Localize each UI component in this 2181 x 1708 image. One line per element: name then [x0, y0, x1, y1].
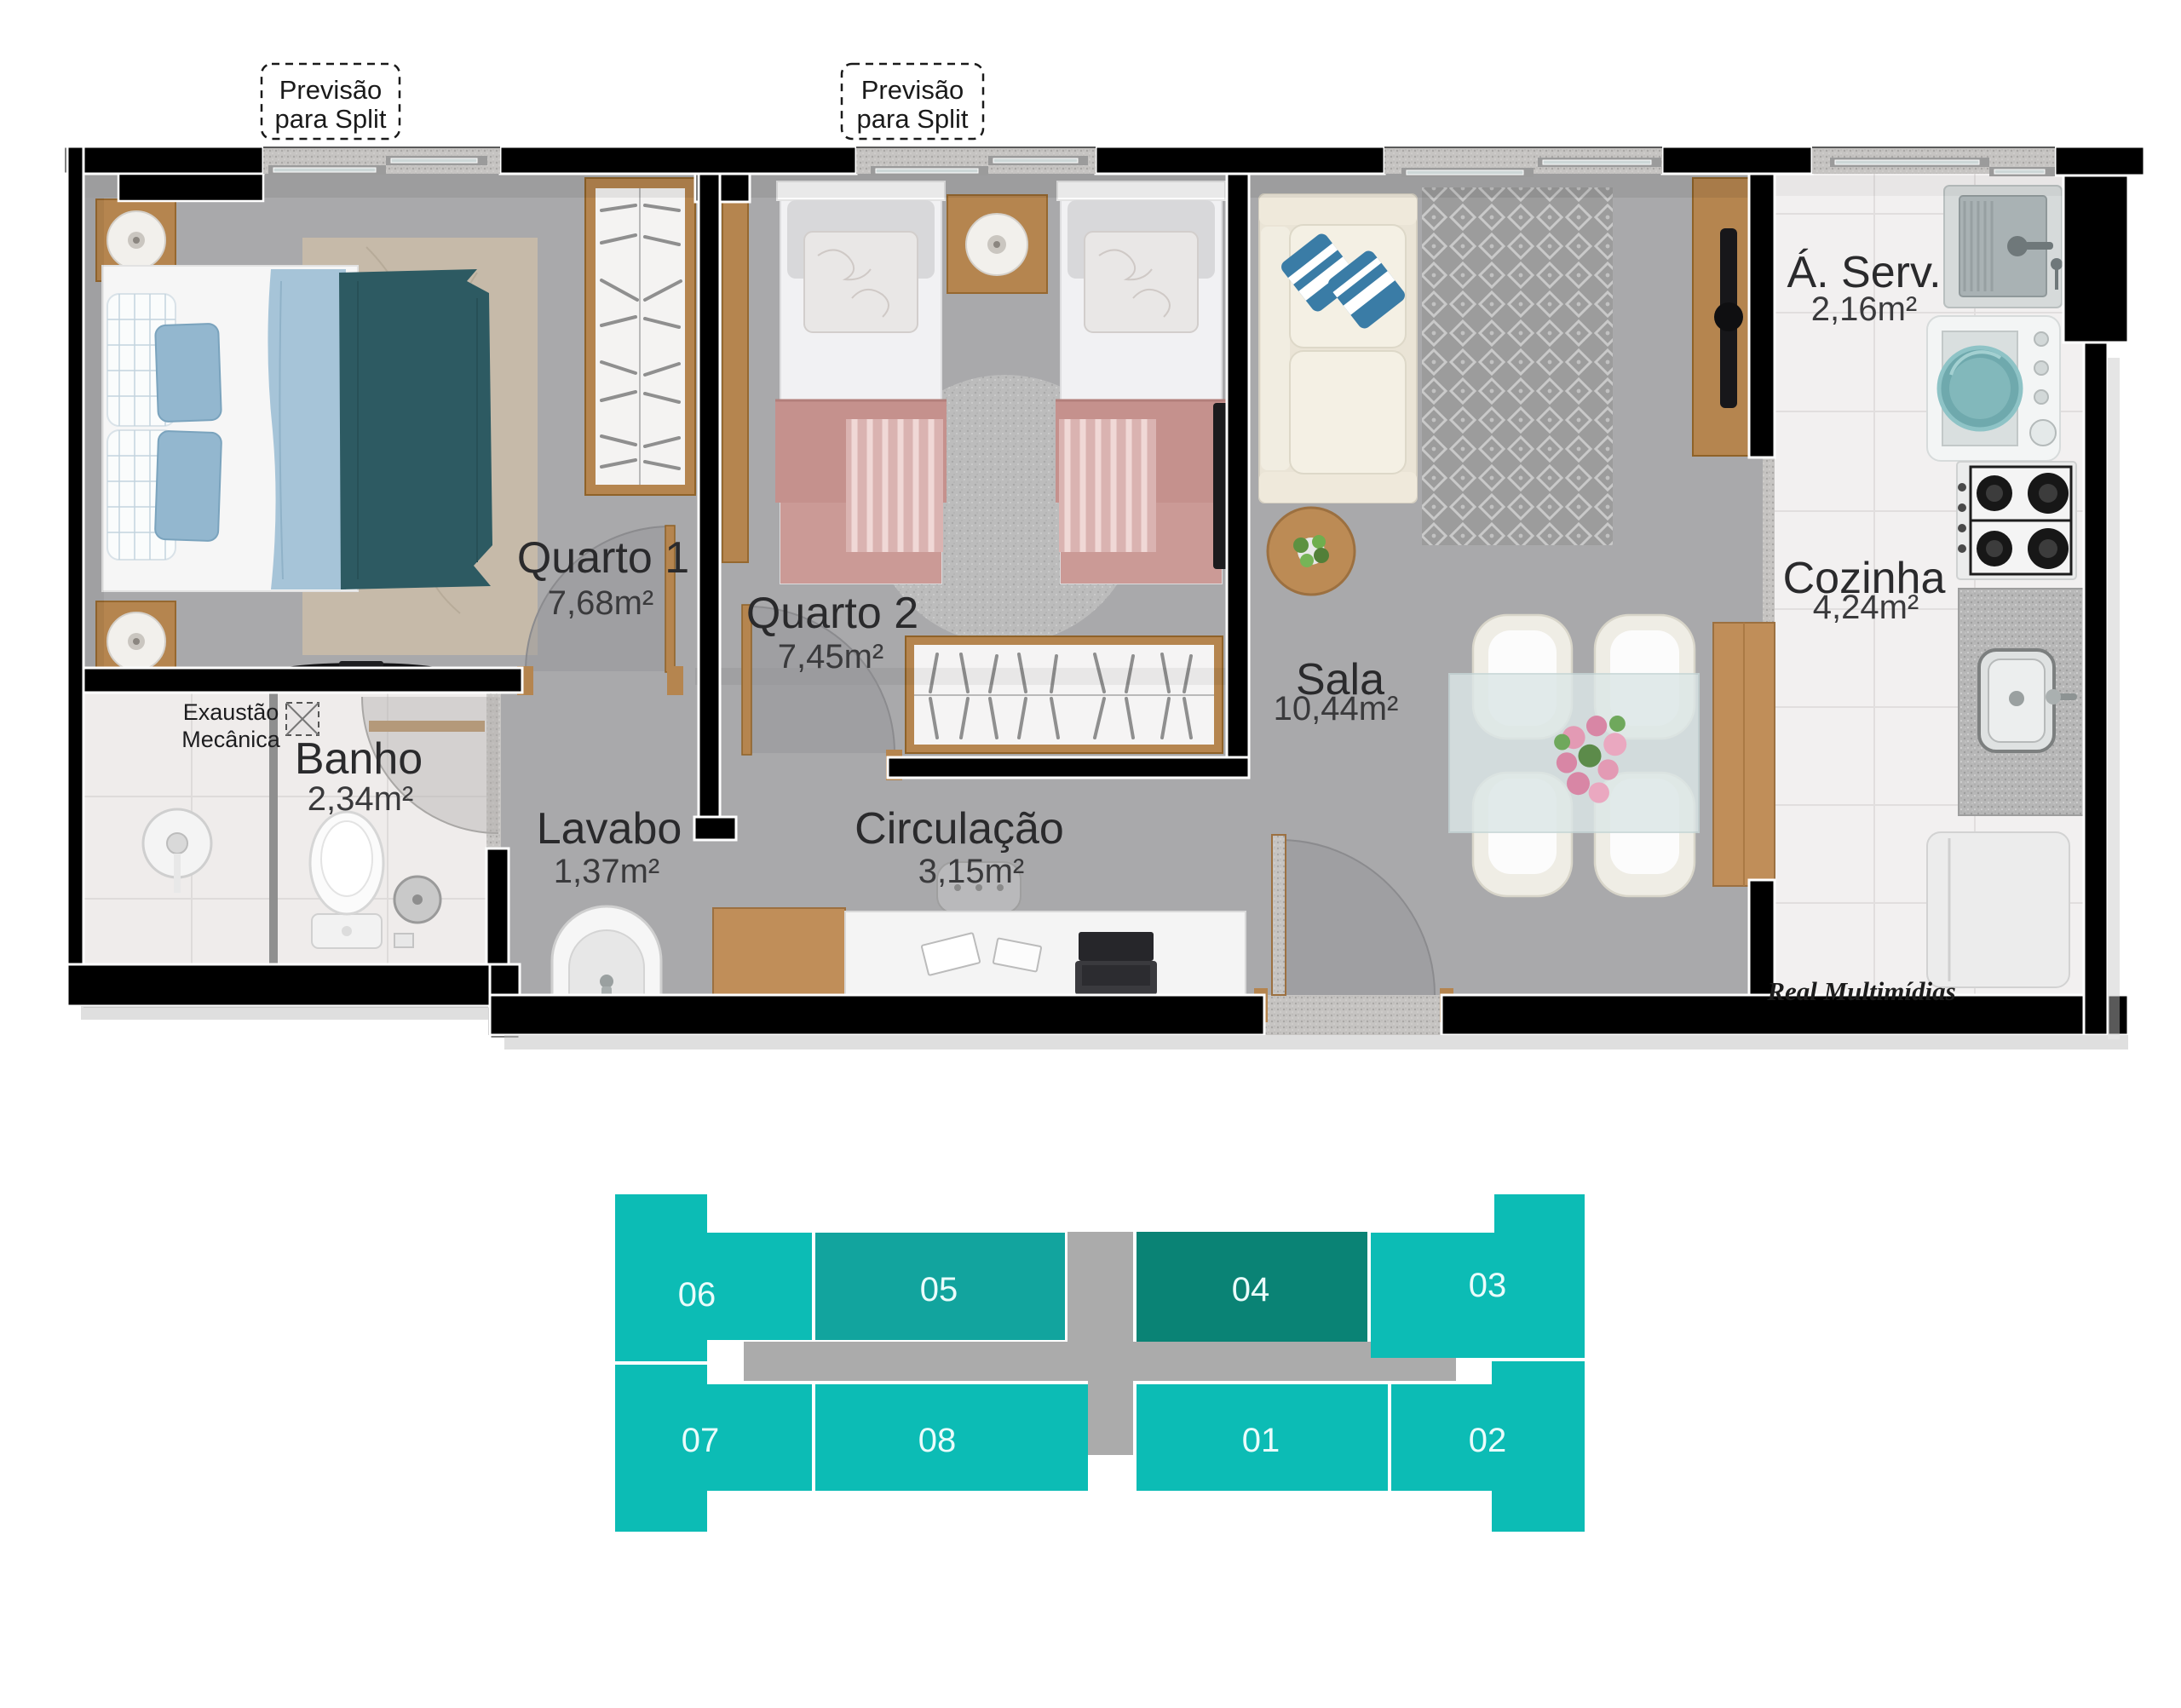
svg-text:7,45m²: 7,45m² — [778, 638, 884, 676]
svg-text:08: 08 — [918, 1422, 957, 1459]
svg-text:04: 04 — [1232, 1271, 1270, 1308]
svg-text:Previsão: Previsão — [279, 75, 383, 105]
svg-text:Quarto 1: Quarto 1 — [517, 533, 689, 583]
svg-text:4,24m²: 4,24m² — [1813, 589, 1919, 626]
svg-text:10,44m²: 10,44m² — [1274, 690, 1399, 727]
svg-text:05: 05 — [920, 1271, 958, 1308]
svg-text:07: 07 — [682, 1422, 720, 1459]
svg-text:para Split: para Split — [275, 104, 387, 134]
svg-text:3,15m²: 3,15m² — [918, 853, 1025, 890]
svg-text:Quarto 2: Quarto 2 — [746, 589, 918, 638]
svg-text:02: 02 — [1469, 1422, 1507, 1459]
svg-text:para Split: para Split — [857, 104, 969, 134]
svg-text:Circulação: Circulação — [855, 804, 1064, 854]
svg-text:Mecânica: Mecânica — [181, 727, 281, 752]
svg-text:7,68m²: 7,68m² — [548, 584, 654, 622]
svg-text:Real Multimídias: Real Multimídias — [1766, 976, 1955, 1006]
svg-text:Previsão: Previsão — [861, 75, 964, 105]
svg-text:Exaustão: Exaustão — [183, 699, 279, 725]
svg-text:2,34m²: 2,34m² — [308, 780, 414, 818]
svg-text:Lavabo: Lavabo — [537, 804, 682, 854]
svg-text:01: 01 — [1242, 1422, 1280, 1459]
svg-text:1,37m²: 1,37m² — [554, 853, 660, 890]
svg-text:2,16m²: 2,16m² — [1811, 290, 1918, 328]
svg-text:06: 06 — [678, 1276, 716, 1314]
svg-text:03: 03 — [1469, 1267, 1507, 1304]
svg-text:Banho: Banho — [295, 734, 423, 784]
